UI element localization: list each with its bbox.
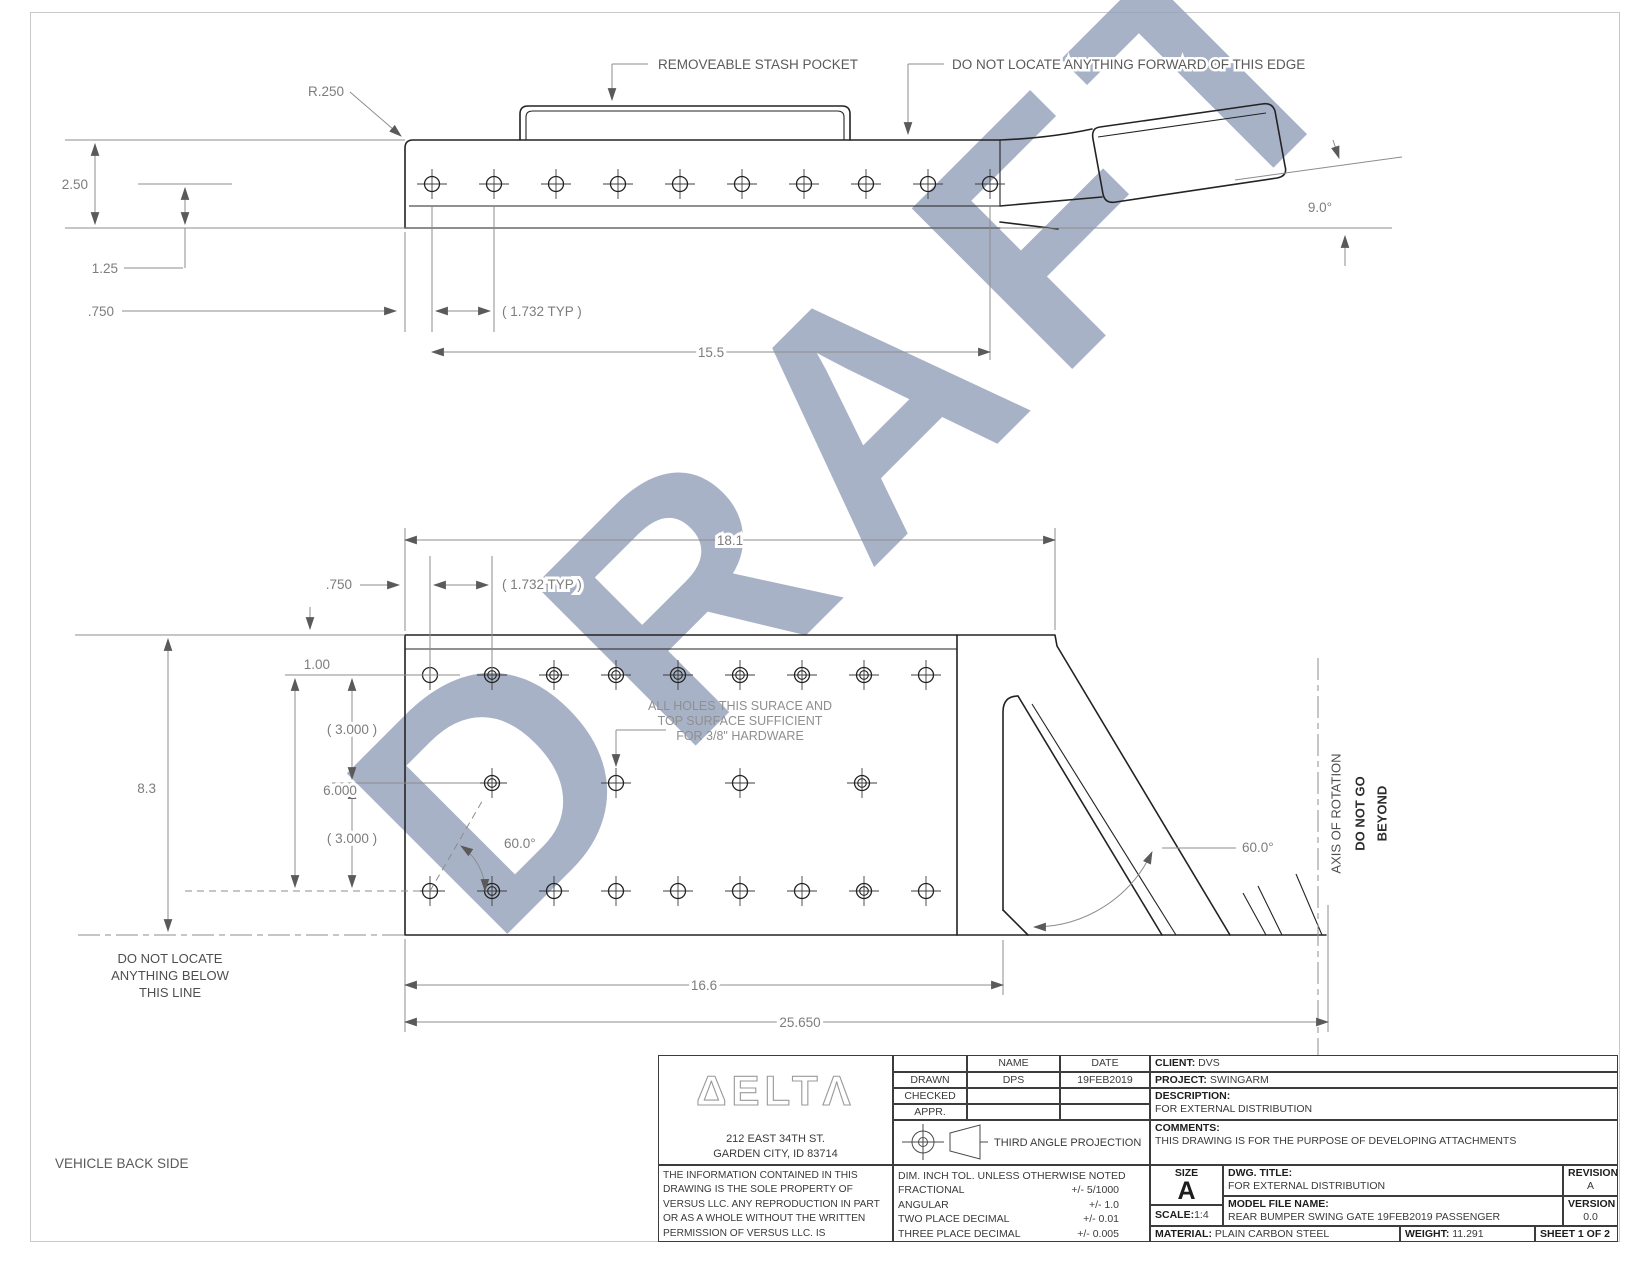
dim-arm-angle-back: 60.0°: [1242, 840, 1274, 855]
holes-note: ALL HOLES THIS SURACE AND TOP SURFACE SU…: [615, 699, 865, 744]
revision-value: A: [1568, 1180, 1613, 1193]
approval-row-label: CHECKED: [893, 1088, 967, 1104]
stash-pocket-label: REMOVEABLE STASH POCKET: [658, 57, 858, 72]
client-value: DVS: [1198, 1057, 1220, 1069]
size-cell: SIZEA: [1150, 1165, 1223, 1205]
dim-radius: R.250: [308, 84, 344, 99]
dwg-title-label: DWG. TITLE:: [1228, 1167, 1558, 1180]
approval-row-name: [967, 1088, 1060, 1104]
client-cell: CLIENT: DVS: [1150, 1055, 1618, 1072]
material-label: MATERIAL:: [1155, 1228, 1212, 1240]
dim-edge-margin-top: .750: [88, 304, 114, 319]
dim-hole-span: 15.5: [698, 345, 724, 360]
title-block: ΔELTΛ 212 EAST 34TH ST. GARDEN CITY, ID …: [658, 1055, 1618, 1242]
dim-view-height: 8.3: [137, 781, 156, 796]
dim-row-span: 6.000: [323, 783, 357, 798]
svg-text:ΔELTΛ: ΔELTΛ: [696, 1067, 855, 1114]
dim-hole-pitch-top: ( 1.732 TYP ): [502, 304, 582, 319]
tol-label: THREE PLACE DECIMAL: [898, 1227, 1021, 1241]
weight-label: WEIGHT:: [1405, 1228, 1449, 1240]
side-view-part: [405, 104, 1286, 229]
sheet-cell: SHEET 1 OF 2: [1535, 1226, 1618, 1242]
version-label: VERSION: [1568, 1198, 1613, 1211]
description-cell: DESCRIPTION:FOR EXTERNAL DISTRIBUTION: [1150, 1088, 1618, 1120]
dim-hole-offset: 1.25: [92, 261, 118, 276]
dim-base-length: 16.6: [691, 978, 717, 993]
company-address: 212 EAST 34TH ST. GARDEN CITY, ID 83714: [659, 1132, 892, 1162]
legal-notice: THE INFORMATION CONTAINED IN THIS DRAWIN…: [658, 1165, 893, 1242]
approval-row-name: [967, 1104, 1060, 1120]
dimension-lines: [95, 140, 1345, 1022]
projection-cell: THIRD ANGLE PROJECTION: [893, 1120, 1150, 1165]
tol-label: FRACTIONAL: [898, 1183, 965, 1197]
approval-name-header: NAME: [967, 1055, 1060, 1072]
tolerance-title: DIM. INCH TOL. UNLESS OTHERWISE NOTED: [898, 1169, 1145, 1183]
dim-hole-pitch-bottom: ( 1.732 TYP ): [502, 577, 582, 592]
forward-edge-label: DO NOT LOCATE ANYTHING FORWARD OF THIS E…: [952, 57, 1305, 72]
approval-row-label: APPR.: [893, 1104, 967, 1120]
model-file-value: REAR BUMPER SWING GATE 19FEB2019 PASSENG…: [1228, 1211, 1558, 1224]
third-angle-projection-icon: THIRD ANGLE PROJECTION: [898, 1122, 1148, 1163]
approval-row-label: DRAWN: [893, 1072, 967, 1088]
project-label: PROJECT:: [1155, 1074, 1207, 1086]
approval-date-header: DATE: [1060, 1055, 1150, 1072]
weight-cell: WEIGHT: 11.291: [1400, 1226, 1535, 1242]
model-file-cell: MODEL FILE NAME:REAR BUMPER SWING GATE 1…: [1223, 1196, 1563, 1226]
client-label: CLIENT:: [1155, 1057, 1195, 1069]
dim-top-offset: 1.00: [304, 657, 330, 672]
dim-arm-angle-side: 9.0°: [1308, 200, 1332, 215]
weight-value: 11.291: [1452, 1228, 1483, 1240]
below-line-warning: DO NOT LOCATE ANYTHING BELOW THIS LINE: [95, 950, 245, 1001]
hole-symbols: [415, 169, 1005, 906]
dim-total-length: 25.650: [779, 1015, 820, 1030]
svg-text:THIRD ANGLE PROJECTION: THIRD ANGLE PROJECTION: [994, 1137, 1141, 1149]
comments-label: COMMENTS:: [1155, 1122, 1613, 1135]
scale-value: 1:4: [1194, 1209, 1209, 1221]
tolerance-cell: DIM. INCH TOL. UNLESS OTHERWISE NOTED FR…: [893, 1165, 1150, 1242]
version-cell: VERSION0.0: [1563, 1196, 1618, 1226]
tol-value: +/- 0.01: [1083, 1212, 1119, 1226]
scale-cell: SCALE:1:4: [1150, 1205, 1223, 1226]
dim-height: 2.50: [62, 177, 88, 192]
project-cell: PROJECT: SWINGARM: [1150, 1072, 1618, 1088]
revision-label: REVISION: [1568, 1167, 1613, 1180]
tol-label: ANGULAR: [898, 1198, 949, 1212]
approval-row-name: DPS: [967, 1072, 1060, 1088]
axis-beyond-label: BEYOND: [1375, 664, 1390, 964]
model-file-label: MODEL FILE NAME:: [1228, 1198, 1558, 1211]
tol-value: +/- 5/1000: [1071, 1183, 1119, 1197]
material-cell: MATERIAL: PLAIN CARBON STEEL: [1150, 1226, 1400, 1242]
logo-cell: ΔELTΛ 212 EAST 34TH ST. GARDEN CITY, ID …: [658, 1055, 893, 1165]
dim-hole-angle: 60.0°: [504, 836, 536, 851]
dim-row-gap-upper: ( 3.000 ): [327, 722, 377, 737]
dim-row-gap-lower: ( 3.000 ): [327, 831, 377, 846]
axis-do-not-go-label: DO NOT GO: [1353, 664, 1368, 964]
tol-label: TWO PLACE DECIMAL: [898, 1212, 1009, 1226]
axis-of-rotation-label: AXIS OF ROTATION: [1329, 664, 1344, 964]
delta-logo: ΔELTΛ: [663, 1057, 890, 1127]
dwg-title-value: FOR EXTERNAL DISTRIBUTION: [1228, 1180, 1558, 1193]
dwg-title-cell: DWG. TITLE:FOR EXTERNAL DISTRIBUTION: [1223, 1165, 1563, 1196]
description-label: DESCRIPTION:: [1155, 1090, 1613, 1103]
leader-lines: [350, 64, 944, 766]
material-value: PLAIN CARBON STEEL: [1215, 1228, 1329, 1240]
approval-corner-cell: [893, 1055, 967, 1072]
tol-value: +/- 0.005: [1077, 1227, 1119, 1241]
project-value: SWINGARM: [1210, 1074, 1269, 1086]
approval-row-date: 19FEB2019: [1060, 1072, 1150, 1088]
drawing-sheet: DRAFT: [0, 0, 1650, 1275]
comments-cell: COMMENTS:THIS DRAWING IS FOR THE PURPOSE…: [1150, 1120, 1618, 1165]
vehicle-back-side-label: VEHICLE BACK SIDE: [55, 1156, 189, 1171]
approval-row-date: [1060, 1088, 1150, 1104]
scale-label: SCALE:: [1155, 1209, 1194, 1221]
size-value: A: [1155, 1180, 1218, 1202]
comments-value: THIS DRAWING IS FOR THE PURPOSE OF DEVEL…: [1155, 1135, 1613, 1148]
extension-lines: [65, 140, 1402, 1085]
tol-value: +/- 1.0: [1089, 1198, 1119, 1212]
dim-width: 18.1: [717, 533, 743, 548]
approval-row-date: [1060, 1104, 1150, 1120]
revision-cell: REVISIONA: [1563, 1165, 1618, 1196]
dim-edge-margin-bottom: .750: [326, 577, 352, 592]
description-value: FOR EXTERNAL DISTRIBUTION: [1155, 1103, 1613, 1116]
version-value: 0.0: [1568, 1211, 1613, 1224]
